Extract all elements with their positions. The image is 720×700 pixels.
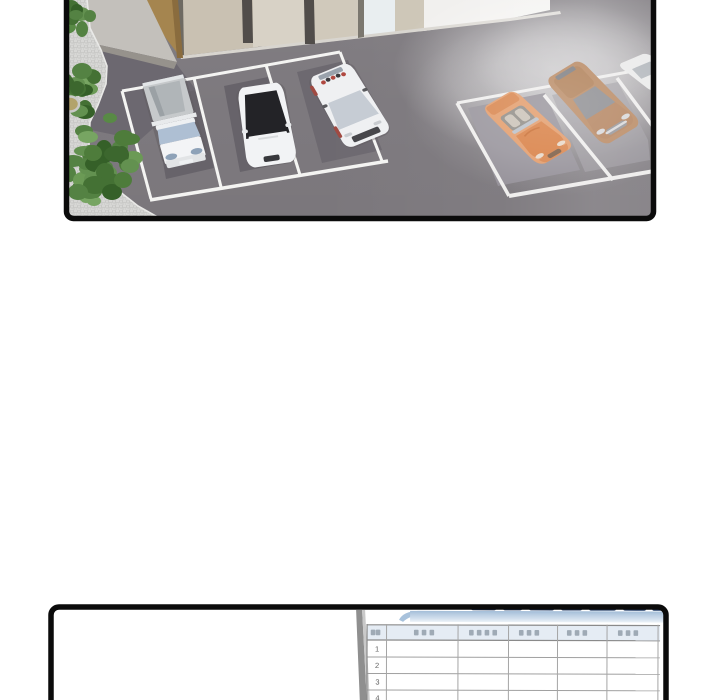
- svg-text:4: 4: [375, 694, 379, 700]
- svg-text:3: 3: [375, 678, 379, 687]
- svg-text:1: 1: [375, 645, 379, 654]
- svg-text:2: 2: [375, 661, 379, 670]
